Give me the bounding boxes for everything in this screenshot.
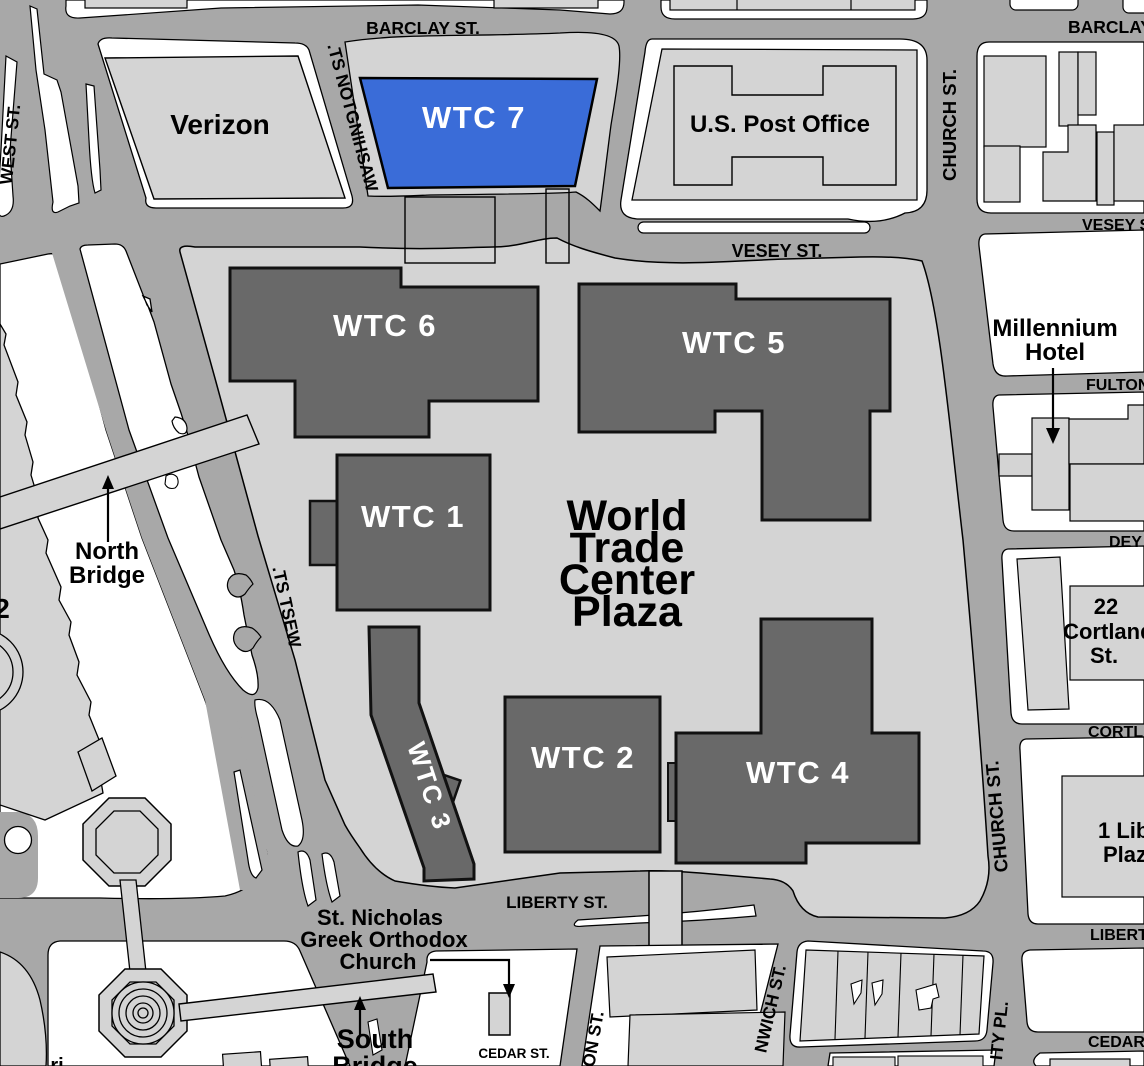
svg-text:ri: ri [50,1055,63,1066]
svg-text:WTC 1: WTC 1 [361,499,465,534]
svg-text:WTC 7: WTC 7 [422,100,526,135]
svg-text:Church: Church [340,949,417,974]
svg-text:CORTLANDT ST.: CORTLANDT ST. [1088,724,1144,741]
svg-text:U.S. Post Office: U.S. Post Office [690,111,870,138]
svg-text:22: 22 [1094,594,1118,619]
svg-text:1 Liberty: 1 Liberty [1098,818,1144,843]
svg-text:Bridge: Bridge [69,562,145,589]
svg-text:CHURCH ST.: CHURCH ST. [939,69,960,181]
svg-text:WTC 2: WTC 2 [531,740,635,775]
svg-text:WTC 5: WTC 5 [682,325,786,360]
svg-text:WTC 6: WTC 6 [333,308,437,343]
svg-text:Cortlandt: Cortlandt [1063,619,1144,644]
svg-text:South: South [337,1024,413,1054]
svg-text:Millennium: Millennium [992,315,1117,342]
svg-text:2: 2 [0,593,10,624]
svg-text:FULTON ST.: FULTON ST. [1086,377,1144,394]
svg-text:DEY ST.: DEY ST. [1109,534,1144,551]
svg-text:Hotel: Hotel [1025,339,1085,366]
svg-text:North: North [75,538,139,565]
svg-text:WTC 4: WTC 4 [746,755,850,790]
svg-text:Plaza: Plaza [572,588,683,636]
svg-text:BARCLAY ST.: BARCLAY ST. [1068,17,1144,37]
svg-text:St.: St. [1090,643,1118,668]
svg-text:Bridge: Bridge [332,1051,418,1066]
svg-text:LIBERTY ST.: LIBERTY ST. [1090,927,1144,944]
svg-text:LIBERTY ST.: LIBERTY ST. [506,893,608,912]
svg-text:CEDAR ST.: CEDAR ST. [1088,1034,1144,1051]
svg-text:CEDAR ST.: CEDAR ST. [478,1046,549,1061]
svg-text:BARCLAY ST.: BARCLAY ST. [366,18,480,38]
svg-text:VESEY ST.: VESEY ST. [1082,217,1144,234]
svg-text:Plaza: Plaza [1103,842,1144,867]
svg-text:Verizon: Verizon [170,109,270,140]
svg-text:VESEY ST.: VESEY ST. [732,241,823,261]
